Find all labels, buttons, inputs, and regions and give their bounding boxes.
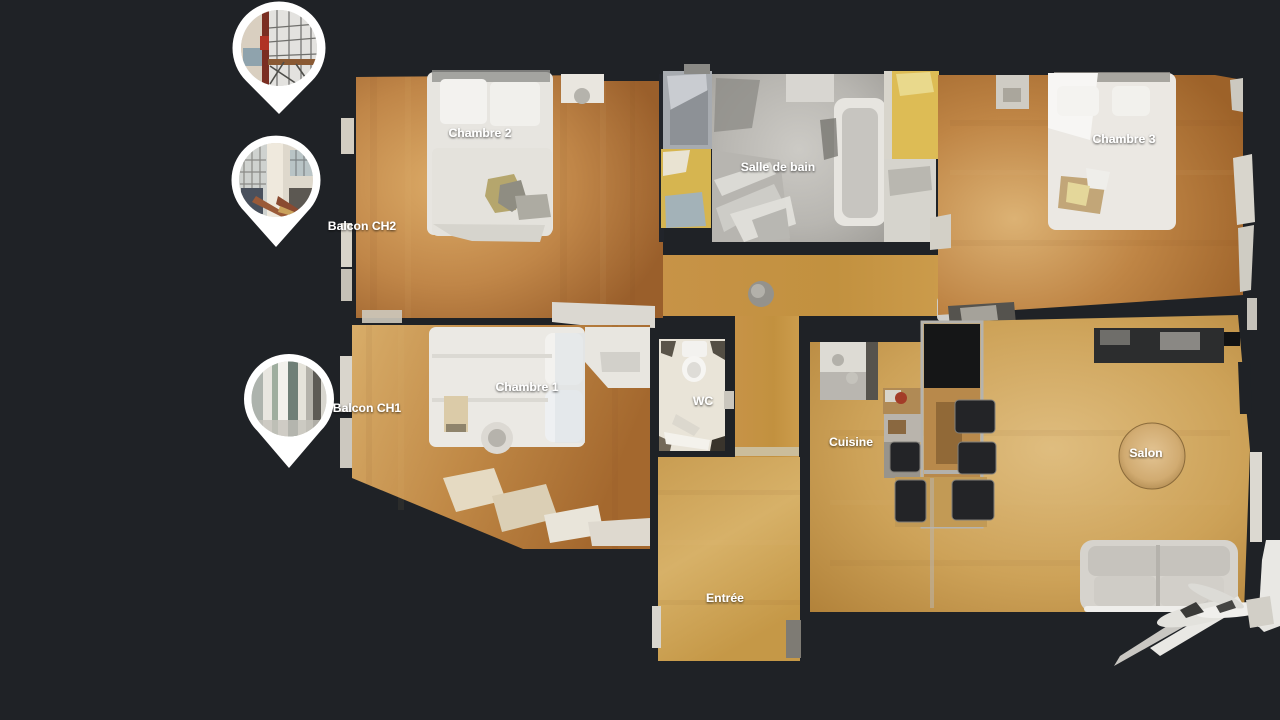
svg-text:Entrée: Entrée	[706, 591, 744, 605]
svg-text:Cuisine: Cuisine	[829, 435, 873, 449]
svg-text:Salon: Salon	[1129, 446, 1162, 460]
svg-text:Salle de bain: Salle de bain	[741, 160, 816, 174]
svg-text:Chambre 1: Chambre 1	[496, 380, 559, 394]
svg-text:Chambre 2: Chambre 2	[449, 126, 512, 140]
svg-text:Balcon CH1: Balcon CH1	[333, 401, 402, 415]
svg-text:Chambre 3: Chambre 3	[1093, 132, 1156, 146]
svg-text:Balcon CH2: Balcon CH2	[328, 219, 397, 233]
svg-text:WC: WC	[693, 394, 714, 408]
